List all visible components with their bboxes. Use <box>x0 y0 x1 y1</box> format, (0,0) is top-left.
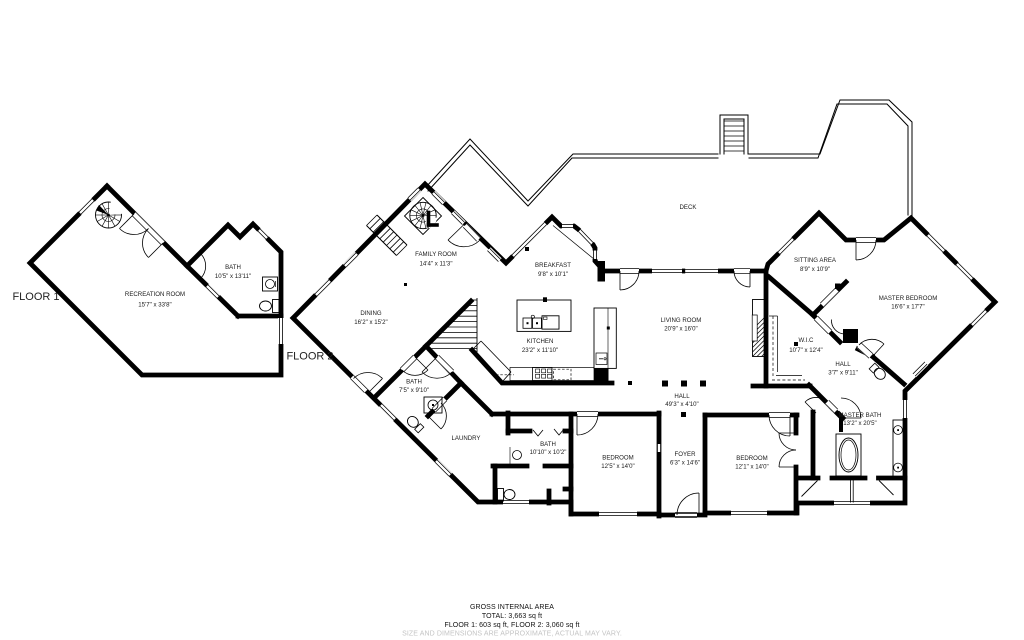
svg-text:FLOOR 1: FLOOR 1 <box>12 291 59 303</box>
svg-text:23'2" x 11'10": 23'2" x 11'10" <box>522 347 558 354</box>
svg-text:BATH: BATH <box>406 379 422 386</box>
svg-text:7'5" x 9'10": 7'5" x 9'10" <box>399 387 429 394</box>
svg-text:HALL: HALL <box>835 361 851 368</box>
svg-text:LIVING ROOM: LIVING ROOM <box>661 317 702 324</box>
svg-text:TOTAL: 3,663 sq ft: TOTAL: 3,663 sq ft <box>482 613 542 620</box>
svg-text:10'10" x 10'2": 10'10" x 10'2" <box>530 449 567 456</box>
svg-text:9'8" x 10'1": 9'8" x 10'1" <box>538 271 568 278</box>
svg-text:16'2" x 15'2": 16'2" x 15'2" <box>354 319 387 326</box>
svg-text:LAUNDRY: LAUNDRY <box>451 435 480 442</box>
svg-text:W.I.C: W.I.C <box>799 337 814 344</box>
svg-text:SITTING AREA: SITTING AREA <box>794 257 837 264</box>
svg-text:KITCHEN: KITCHEN <box>527 338 554 345</box>
svg-text:6'3" x 14'6": 6'3" x 14'6" <box>670 460 700 467</box>
svg-text:FOYER: FOYER <box>675 451 697 458</box>
svg-text:BREAKFAST: BREAKFAST <box>535 262 571 269</box>
svg-text:FLOOR 2: FLOOR 2 <box>286 351 333 363</box>
svg-text:BEDROOM: BEDROOM <box>736 455 768 462</box>
svg-text:15'7" x 33'8": 15'7" x 33'8" <box>138 302 171 309</box>
svg-text:12'5" x 14'0": 12'5" x 14'0" <box>601 463 634 470</box>
svg-text:20'9" x 16'0": 20'9" x 16'0" <box>664 326 697 333</box>
svg-text:16'6" x 17'7": 16'6" x 17'7" <box>891 304 924 311</box>
svg-text:MASTER BEDROOM: MASTER BEDROOM <box>879 295 938 302</box>
svg-text:BATH: BATH <box>540 441 556 448</box>
svg-text:DECK: DECK <box>680 204 697 211</box>
svg-text:DINING: DINING <box>360 310 382 317</box>
svg-text:BEDROOM: BEDROOM <box>602 455 634 462</box>
svg-text:HALL: HALL <box>674 393 690 400</box>
svg-text:RECREATION ROOM: RECREATION ROOM <box>125 291 185 298</box>
svg-text:3'7" x 9'11": 3'7" x 9'11" <box>828 370 858 377</box>
svg-text:MASTER BATH: MASTER BATH <box>839 412 882 419</box>
svg-text:FAMILY ROOM: FAMILY ROOM <box>415 251 457 258</box>
svg-text:10'7" x 12'4": 10'7" x 12'4" <box>789 347 822 354</box>
svg-text:GROSS INTERNAL AREA: GROSS INTERNAL AREA <box>470 604 554 611</box>
svg-text:14'4" x 11'3": 14'4" x 11'3" <box>420 261 453 268</box>
svg-text:8'9" x 10'9": 8'9" x 10'9" <box>800 266 830 273</box>
svg-text:12'1" x 14'0": 12'1" x 14'0" <box>735 464 768 471</box>
svg-text:BATH: BATH <box>225 264 241 271</box>
svg-text:13'2" x 20'5": 13'2" x 20'5" <box>843 420 876 427</box>
svg-text:49'3" x 4'10": 49'3" x 4'10" <box>665 401 698 408</box>
svg-text:FLOOR 1: 603 sq ft, FLOOR 2: 3: FLOOR 1: 603 sq ft, FLOOR 2: 3,060 sq ft <box>444 622 579 629</box>
svg-text:SIZE AND DIMENSIONS ARE APPROX: SIZE AND DIMENSIONS ARE APPROXIMATE, ACT… <box>402 631 622 638</box>
svg-text:10'5" x 13'11": 10'5" x 13'11" <box>215 273 251 280</box>
